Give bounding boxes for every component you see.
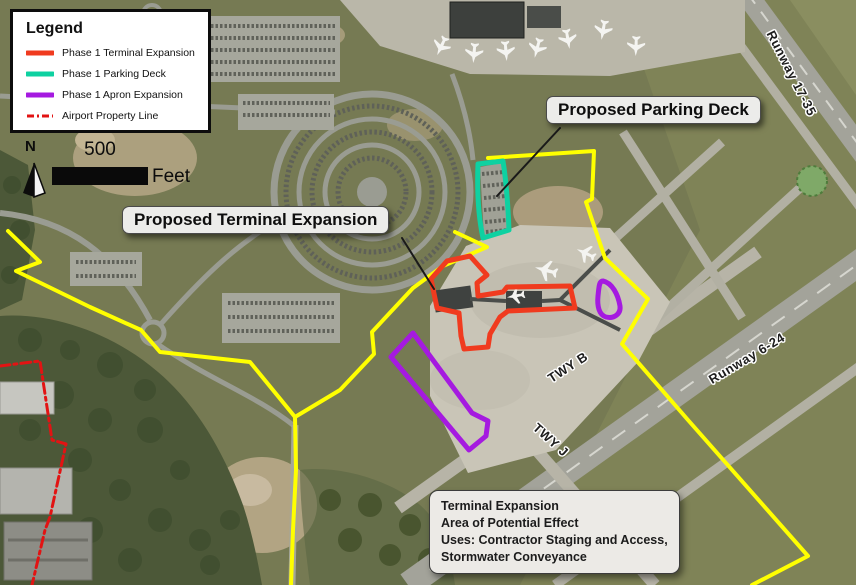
parking-deck-swatch <box>26 71 54 77</box>
scale-bar <box>52 167 148 185</box>
terminal-expansion-swatch <box>26 50 54 56</box>
legend-item-parking-deck: Phase 1 Parking Deck <box>26 67 197 81</box>
scale-unit-label: Feet <box>152 166 190 188</box>
map-canvas: Legend Phase 1 Terminal Expansion Phase … <box>0 0 856 585</box>
area-of-potential-effect-note: Terminal Expansion Area of Potential Eff… <box>429 490 680 574</box>
legend-item-label: Phase 1 Terminal Expansion <box>62 47 195 59</box>
legend-title: Legend <box>26 20 197 38</box>
legend-item-property-line: Airport Property Line <box>26 109 197 123</box>
legend-item-label: Phase 1 Parking Deck <box>62 68 166 80</box>
legend-item-apron-expansion: Phase 1 Apron Expansion <box>26 88 197 102</box>
parking-deck-callout: Proposed Parking Deck <box>546 96 761 124</box>
scale-distance-label: 500 <box>52 139 148 161</box>
info-line: Terminal Expansion <box>441 498 668 515</box>
info-line: Stormwater Conveyance <box>441 549 668 566</box>
legend-box: Legend Phase 1 Terminal Expansion Phase … <box>10 9 211 133</box>
info-line: Area of Potential Effect <box>441 515 668 532</box>
terminal-expansion-callout: Proposed Terminal Expansion <box>122 206 389 234</box>
info-line: Uses: Contractor Staging and Access, <box>441 532 668 549</box>
apron-expansion-swatch <box>26 92 54 98</box>
property-line-swatch <box>26 113 54 119</box>
legend-item-terminal-expansion: Phase 1 Terminal Expansion <box>26 46 197 60</box>
north-arrow-icon <box>18 153 50 199</box>
legend-item-label: Airport Property Line <box>62 110 158 122</box>
legend-item-label: Phase 1 Apron Expansion <box>62 89 183 101</box>
